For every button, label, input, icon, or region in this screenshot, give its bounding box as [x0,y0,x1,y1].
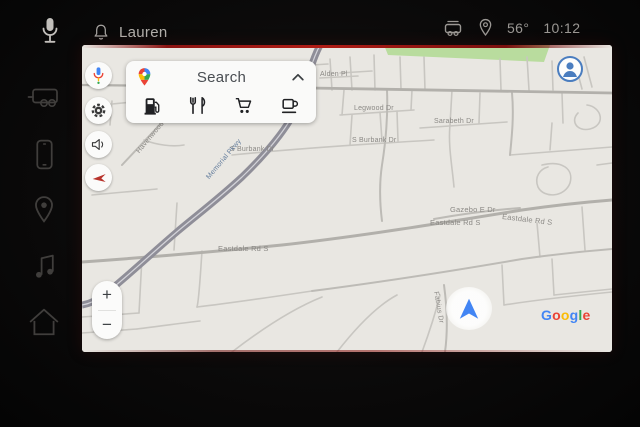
back-arrow-icon [91,172,107,184]
status-cluster: 56° 10:12 [442,18,580,37]
screen-edge-reflection-bottom [82,350,612,352]
volume-button[interactable] [85,131,112,158]
category-restaurants-button[interactable] [186,94,210,118]
category-coffee-button[interactable] [278,94,302,118]
volume-icon [90,137,107,152]
category-shopping-button[interactable] [232,94,256,118]
road-label: Sarabeth Dr [434,118,474,125]
zoom-out-button[interactable]: − [92,311,122,340]
zoom-in-button[interactable]: + [92,281,122,310]
profile-button[interactable] [556,55,584,83]
search-bar[interactable]: Search [126,61,316,92]
navigation-pin-icon [32,195,56,225]
infotainment-screen: Alden Pl Legwood Dr Sarabeth Dr S Burban… [82,45,612,352]
google-logo-letter: G [541,307,552,323]
google-maps-pin-icon [137,67,152,87]
road-label: Alden Pl [320,71,348,78]
dock-item-navigation[interactable] [20,190,68,230]
navigation-arrow-icon [456,296,482,322]
road-label: Eastdale Rd S [430,218,481,227]
shopping-cart-icon [234,96,254,115]
google-logo-letter: o [552,307,561,323]
voice-mic-button[interactable] [36,14,64,48]
clock: 10:12 [543,20,580,36]
dock-item-vehicle[interactable] [20,78,68,118]
trailer-vehicle-icon [25,85,63,111]
gas-station-icon [142,95,162,116]
temperature: 56° [507,20,529,36]
home-icon [25,306,63,338]
google-logo: Google [541,307,590,323]
recenter-button[interactable] [446,287,492,330]
chevron-up-icon[interactable] [291,72,305,82]
google-logo-letter: e [582,307,590,323]
hard-key-dock [18,78,70,342]
vehicle-status-icon[interactable] [442,18,464,37]
phone-icon [33,138,56,171]
coffee-icon [280,95,300,116]
dock-item-media[interactable] [20,246,68,286]
notifications-bell-icon [92,22,110,42]
settings-gear-icon [90,102,107,119]
voice-mic-icon [38,16,62,46]
road-label: S Burbank Dr [352,137,396,144]
assistant-mic-button[interactable] [85,62,112,89]
google-logo-letter: g [570,307,579,323]
search-input[interactable]: Search [152,69,291,86]
notifications-user-chip[interactable]: Lauren [92,22,168,42]
zoom-controls: + − [92,281,122,339]
search-panel: Search [126,61,316,123]
media-note-icon [32,252,57,281]
road-label: Eastdale Rd S [218,244,269,253]
restaurants-icon [188,95,208,116]
profile-avatar-icon [556,55,584,83]
location-pin-icon[interactable] [478,18,493,37]
settings-button[interactable] [85,97,112,124]
car-infotainment-photo: Lauren 56° 10:12 [0,0,640,427]
dock-item-phone[interactable] [20,134,68,174]
dock-item-home[interactable] [20,302,68,342]
road-label: Legwood Dr [354,105,394,112]
back-arrow-button[interactable] [85,164,112,191]
road-label: Gazebo E Dr [450,205,496,214]
google-logo-letter: o [561,307,570,323]
search-category-row [126,92,316,124]
category-gas-button[interactable] [140,94,164,118]
user-name: Lauren [119,24,168,41]
assistant-mic-icon [90,65,107,86]
screen-edge-reflection [82,45,612,48]
